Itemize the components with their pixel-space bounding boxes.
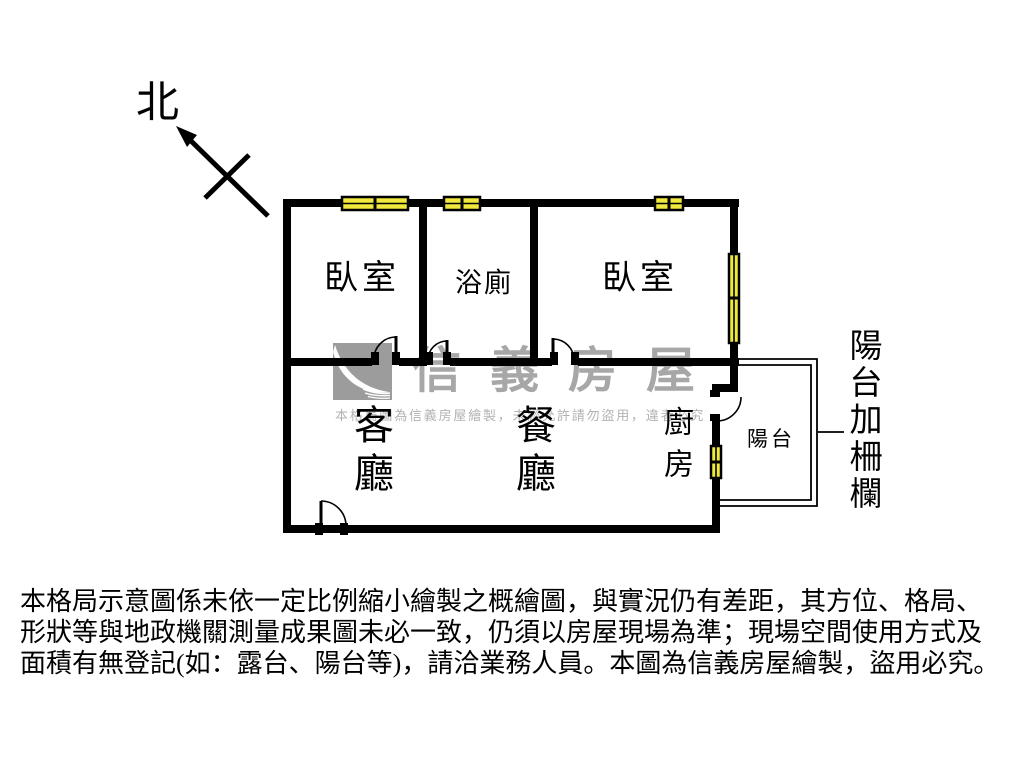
room-label-dining: 餐廳 — [512, 404, 552, 500]
disclaimer-line-2: 形狀等與地政機關測量成果圖未必一致，仍須以房屋現場為準；現場空間使用方式及 — [20, 617, 982, 648]
room-label-living: 客廳 — [350, 404, 390, 500]
balcony-annotation-label: 陽台加柵欄 — [845, 328, 878, 513]
disclaimer-line-3: 面積有無登記(如：露台、陽台等)，請洽業務人員。本圖為信義房屋繪製，盜用必究。 — [20, 648, 999, 679]
disclaimer-line-1: 本格局示意圖係未依一定比例縮小繪製之概繪圖，與實況仍有差距，其方位、格局、 — [20, 586, 982, 617]
labels-layer: 北 臥室 浴廁 臥室 客廳 餐廳 廚房 陽台 陽台加柵欄 本格局示意圖係未依一定… — [0, 0, 1024, 768]
north-label: 北 — [136, 82, 179, 125]
room-label-kitchen: 廚房 — [660, 406, 690, 490]
room-label-bedroom2: 臥室 — [602, 262, 678, 296]
room-label-bathroom: 浴廁 — [455, 270, 513, 297]
room-label-bedroom1: 臥室 — [324, 262, 400, 296]
floorplan-page: 信義房屋 本格局圖為信義房屋繪製，未經允許請勿盜用，違者必究 — [0, 0, 1024, 768]
room-label-balcony: 陽台 — [747, 429, 795, 450]
